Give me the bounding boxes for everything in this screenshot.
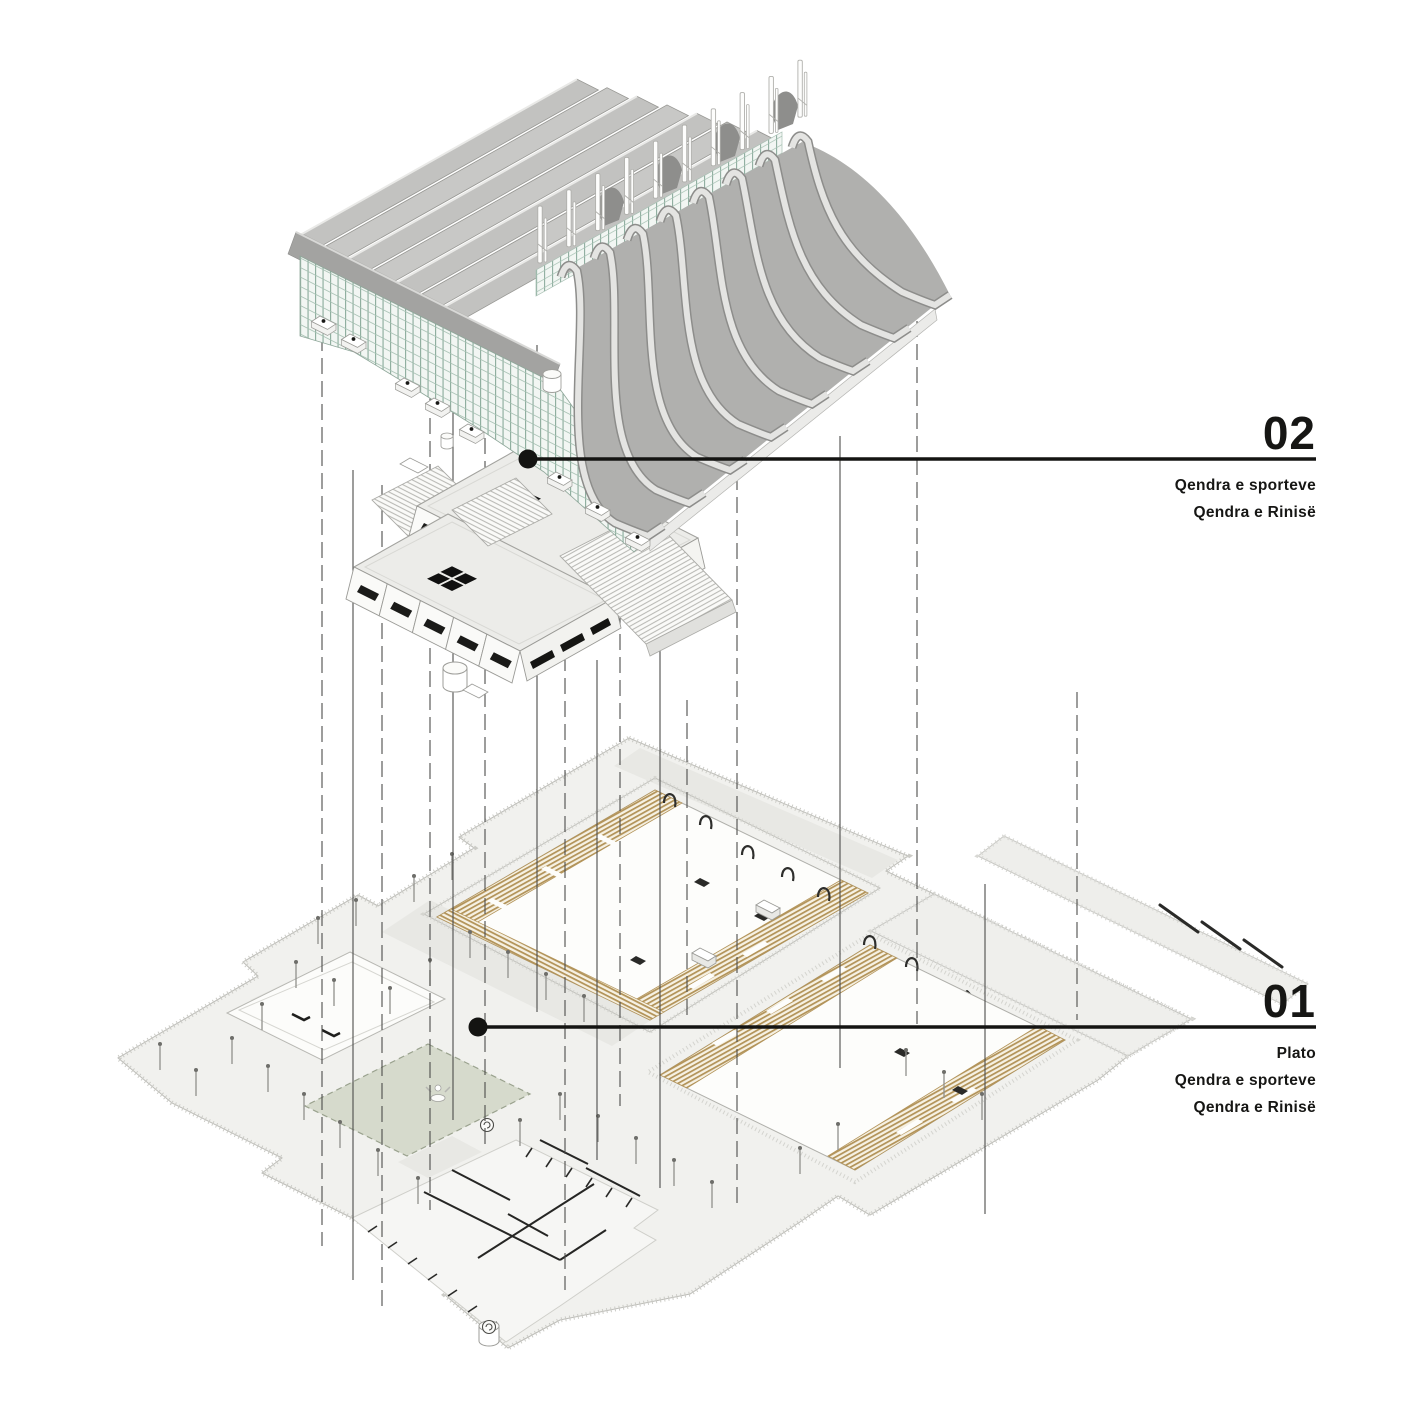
level-01-label-3: Qendra e Rinisë: [1193, 1099, 1316, 1116]
leader-dot-01: [469, 1018, 488, 1037]
level-02-number: 02: [1263, 407, 1316, 459]
level-01-label-2: Qendra e sporteve: [1175, 1072, 1316, 1089]
level-01-number: 01: [1263, 975, 1316, 1027]
level-01-label-1: Plato: [1277, 1045, 1316, 1062]
roof-structure: [288, 60, 950, 552]
exploded-axonometric-diagram: 02 Qendra e sporteve Qendra e Rinisë 01 …: [0, 0, 1417, 1417]
facade-cylinder: [543, 370, 561, 393]
leader-dot-02: [519, 450, 538, 469]
level-02-label-1: Qendra e sporteve: [1175, 477, 1316, 494]
level-02-label-2: Qendra e Rinisë: [1193, 504, 1316, 521]
level-01-plan: [118, 738, 1308, 1348]
